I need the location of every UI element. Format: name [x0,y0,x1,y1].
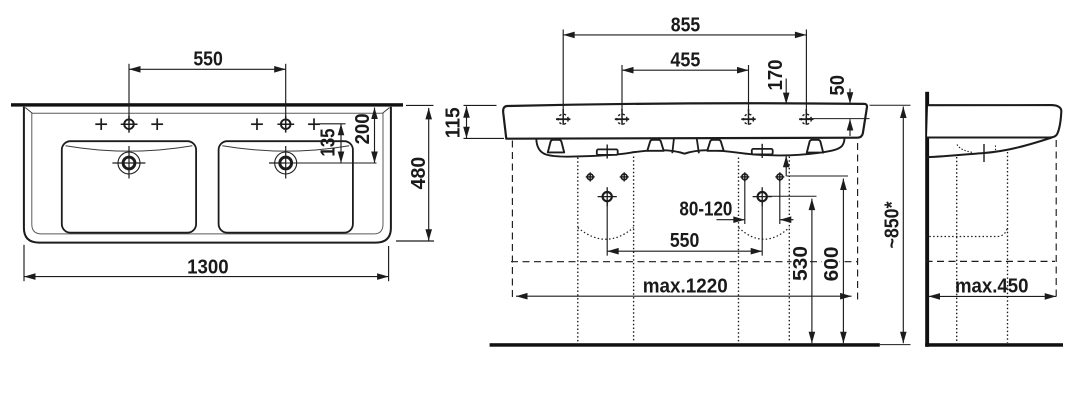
svg-text:855: 855 [671,14,701,36]
svg-text:115: 115 [443,107,465,138]
svg-text:135: 135 [318,129,340,157]
svg-text:170: 170 [765,60,787,91]
svg-text:455: 455 [670,49,700,71]
svg-text:480: 480 [408,157,430,190]
svg-text:550: 550 [193,49,223,71]
svg-text:550: 550 [670,230,700,252]
svg-text:600: 600 [821,246,843,281]
svg-text:~850*: ~850* [882,201,904,248]
svg-text:max.1220: max.1220 [643,275,728,297]
svg-text:1300: 1300 [187,256,229,278]
svg-text:530: 530 [790,246,812,281]
svg-text:50: 50 [827,75,849,96]
svg-text:80-120: 80-120 [679,198,732,220]
svg-text:200: 200 [352,113,374,144]
svg-text:max.450: max.450 [955,276,1029,298]
